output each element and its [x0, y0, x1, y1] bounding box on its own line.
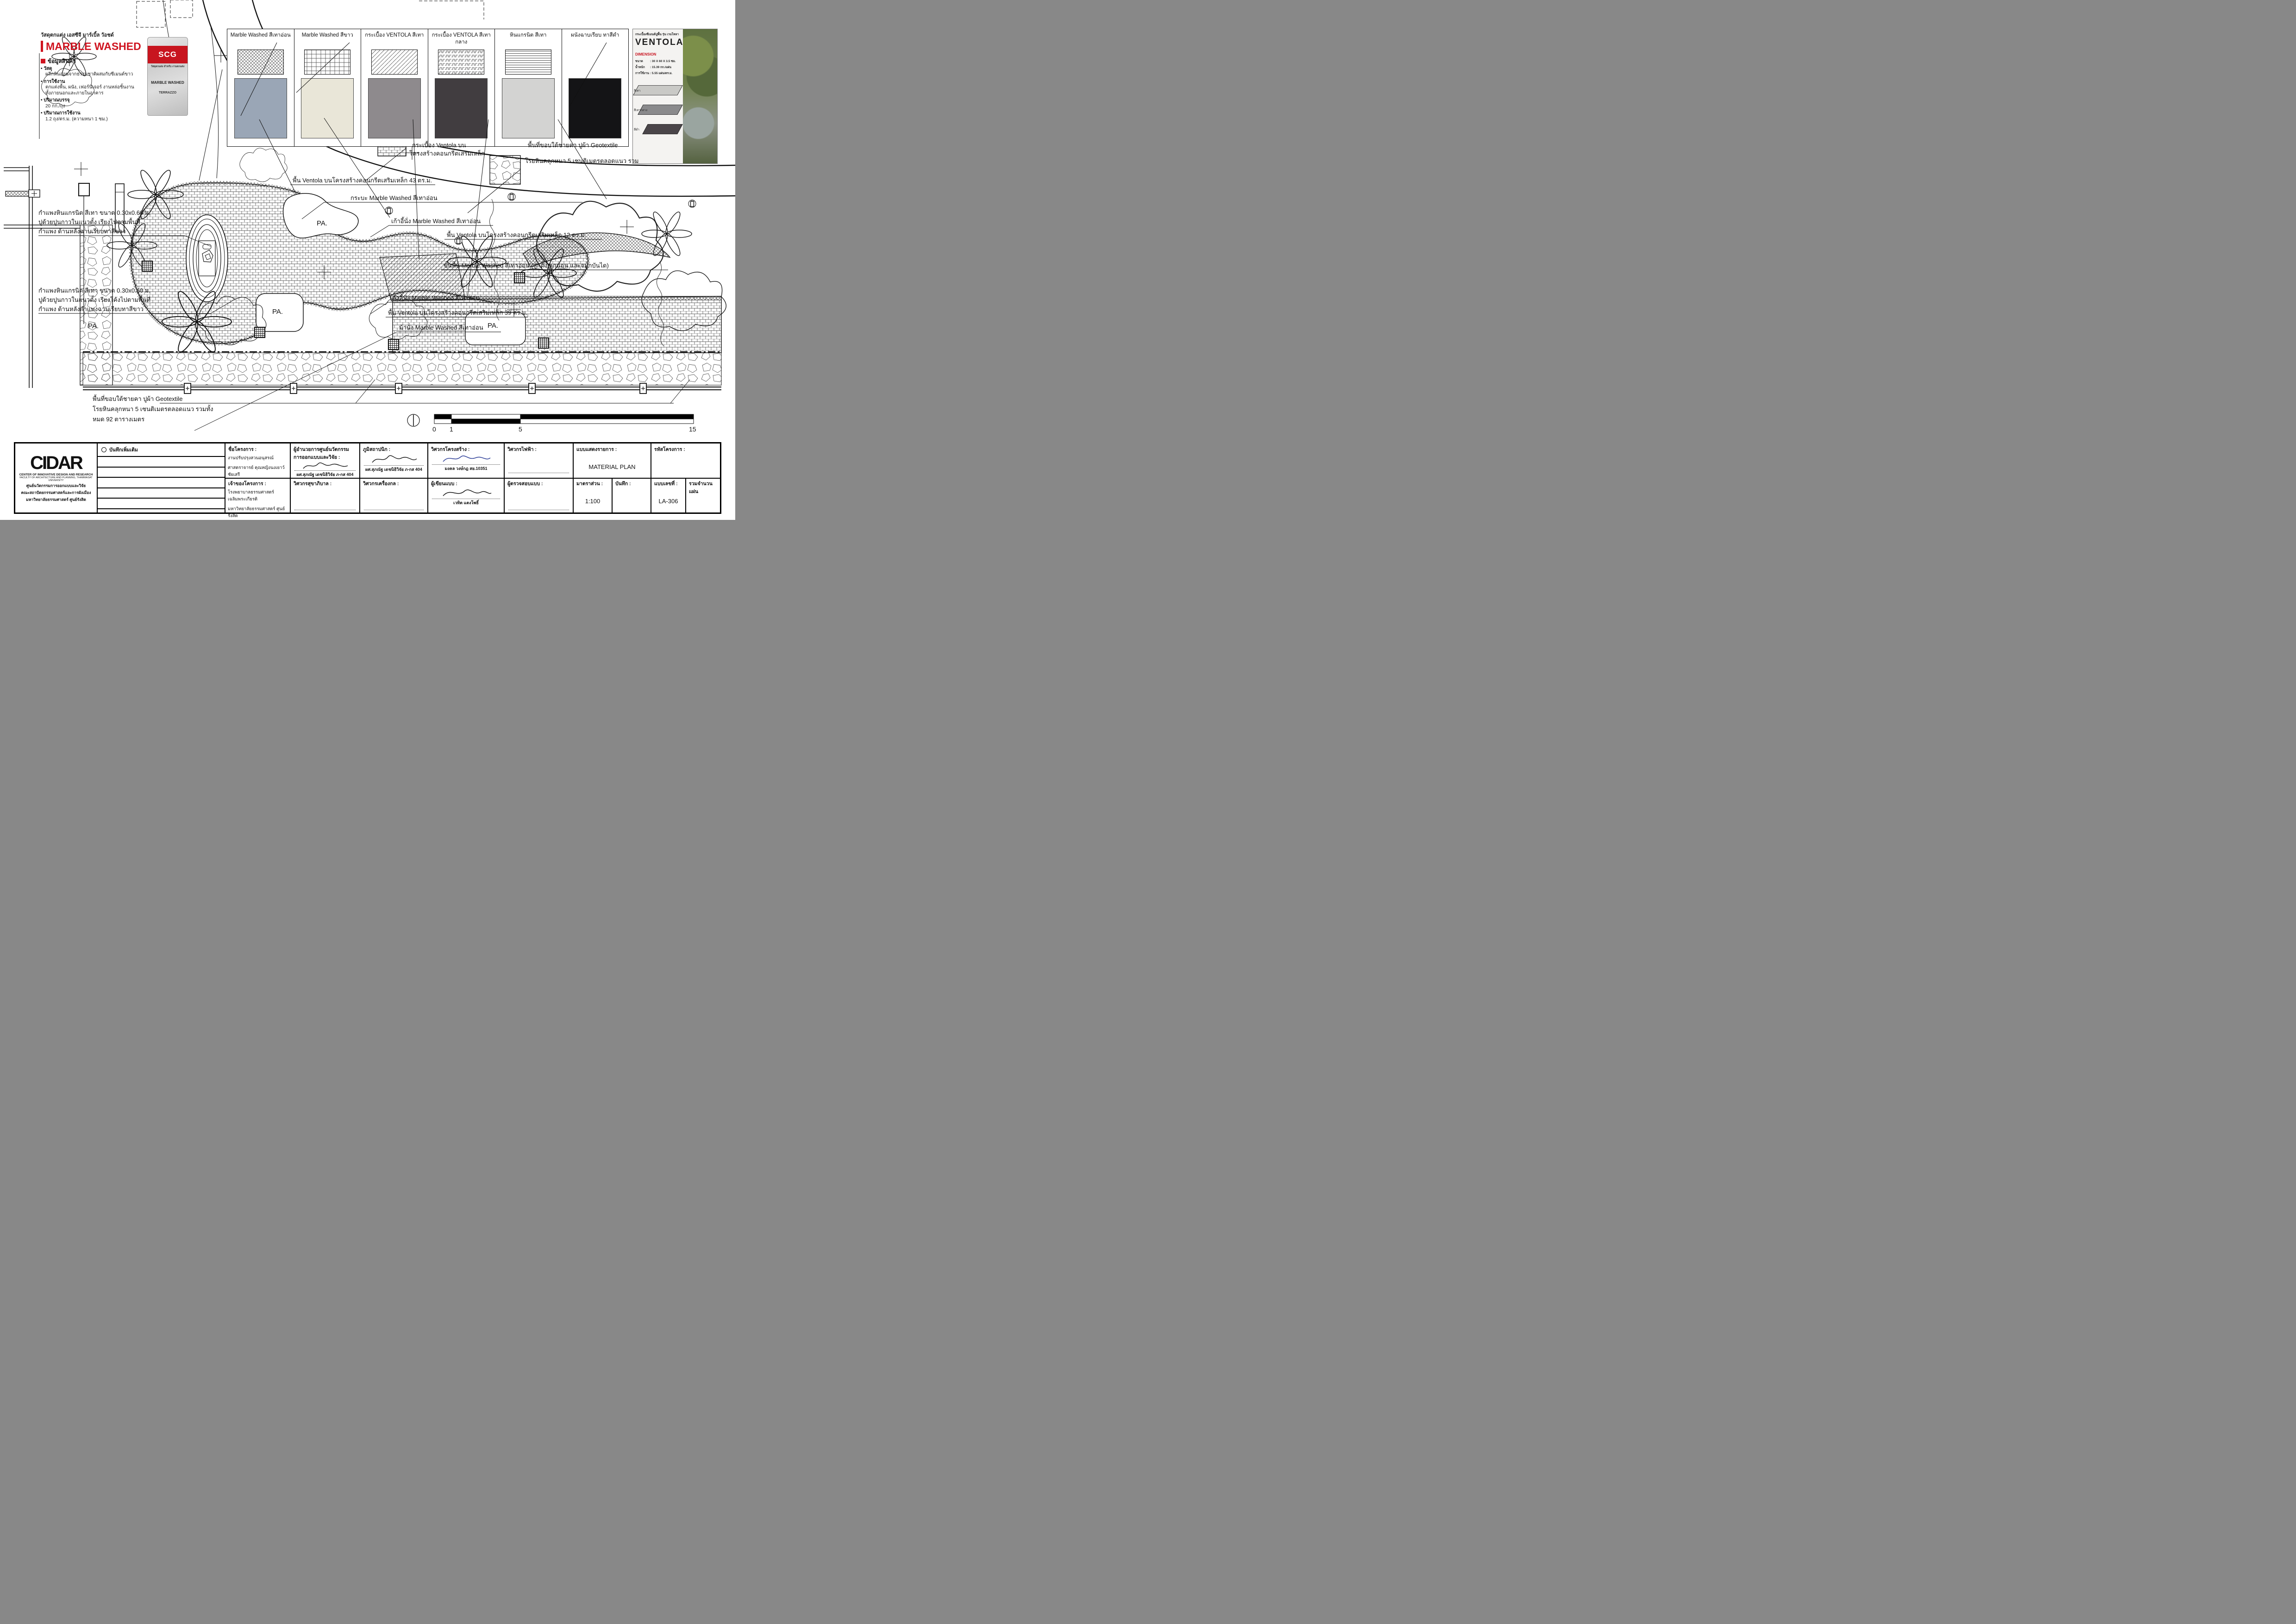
poster-photo: [683, 29, 717, 163]
director-name: ผศ.สุภณัฐ เดชนิธิวิจัย ภ-กส 404: [291, 471, 359, 478]
tile-label-gray: สีเทา: [634, 88, 640, 93]
product-header: วัสดุตกแต่ง เอสซีจี มาร์เบิ้ล วัอชด์: [41, 32, 217, 39]
drafts-name: เวทิต แตงโพธิ์: [428, 500, 504, 506]
title-block: CIDAR CENTER OF INNOVATIVE DESIGN AND RE…: [14, 442, 721, 514]
red-bar: [41, 41, 43, 52]
drafts-signature: [438, 487, 494, 499]
existing-building-outline: [137, 0, 484, 27]
bullet-usage-text2: ทั้งภายนอกและภายในอาคาร: [45, 91, 143, 97]
tile-label-black: สีดำ: [634, 127, 639, 132]
tb-doc-scale-cell: แบบแสดงรายการ : MATERIAL PLAN มาตราส่วน …: [574, 443, 651, 512]
poster-dimension-header: DIMENSION: [635, 52, 681, 56]
poster-header: กระเบื้องซีเมนต์ปูพื้น รุ่น เวนโทลา: [635, 32, 681, 37]
struct-name: มงคล วงษ์กฎ สย.10351: [428, 465, 504, 472]
hatch-diagonal: [371, 50, 418, 75]
bullet-consumption-label: ปริมาณการใช้งาน: [41, 111, 143, 117]
landscape-signature: [369, 453, 419, 465]
tile-gray: [633, 85, 683, 95]
north-arrow: [407, 414, 419, 426]
poster-spec-table: ขนาด: 30 X 60 X 3.5 ซม. น้ำหนัก: 15.39 ก…: [635, 58, 677, 76]
logo-th2: คณะสถาปัตยกรรมศาสตร์และการผังเมือง: [21, 489, 91, 496]
product-info-panel: วัสดุตกแต่ง เอสซีจี มาร์เบิ้ล วัอชด์ MAR…: [41, 32, 217, 130]
tb-notes-cell: บันทึกเพิ่มเติม: [98, 443, 225, 512]
photo-marble-washed-light-gray: [234, 78, 287, 138]
tb-landscape-mech-cell: ภูมิสถาปนิก : ผศ.สุภณัฐ เดชนิธิวิจัย ภ-ก…: [360, 443, 428, 512]
photo-black-plaster-wall: [569, 78, 621, 138]
tb-director-sanitary-cell: ผู้อำนวยการศูนย์นวัตกรรม การออกแบบและวิจ…: [291, 443, 360, 512]
tile-black: [642, 124, 683, 134]
scale-bar: [434, 414, 694, 424]
landscape-label: ภูมิสถาปนิก :: [360, 443, 427, 453]
swatch-marble-washed-white: Marble Washed สีขาว: [294, 29, 362, 146]
sheet-no-value: LA-306: [651, 498, 685, 505]
swatch-black-plaster-wall: ผนังฉาบเรียบ ทาสีดำ: [562, 29, 629, 146]
red-square-icon: [41, 59, 45, 63]
bullet-usage-label: การใช้งาน: [41, 79, 143, 85]
mech-label: วิศวกรเครื่องกล :: [360, 478, 427, 487]
swatch-marble-washed-light-gray: Marble Washed สีเทาอ่อน: [227, 29, 294, 146]
poster-title: VENTOLA: [635, 37, 681, 48]
hatch-grid: [304, 50, 350, 75]
director-label1: ผู้อำนวยการศูนย์นวัตกรรม: [291, 443, 359, 453]
photo-marble-washed-white: [301, 78, 354, 138]
note-row: [98, 477, 225, 487]
product-bag-image: SCG วัสดุตกแต่ง สำหรับ งานตกแต่ง MARBLE …: [147, 37, 188, 116]
swatch-ventola-mid-gray: กระเบื้อง VENTOLA สีเทากลาง: [428, 29, 495, 146]
project-line1: งานปรับปรุงสวนอนุสรณ์: [225, 453, 290, 463]
owner-line2: มหาวิทยาลัยธรรมศาสตร์ ศูนย์รังสิต: [225, 504, 290, 520]
tile-label-mid-gray: สีเทากลาง: [634, 108, 647, 112]
bag-series: TERRAZZO: [148, 91, 188, 94]
logo-en1: CENTER OF INNOVATIVE DESIGN AND RESEARCH: [19, 473, 93, 476]
note-row: [98, 498, 225, 508]
doc-label: แบบแสดงรายการ :: [574, 443, 651, 453]
director-signature: [300, 461, 350, 470]
swatch-granite-gray: หินแกรนิต สีเทา: [495, 29, 562, 146]
bullet-consumption-text: 1.2 ถุง/ตร.ม. (ความหนา 1 ซม.): [45, 117, 143, 123]
bag-tagline: วัสดุตกแต่ง สำหรับ งานตกแต่ง: [148, 65, 188, 69]
note-bullet-icon: [101, 447, 106, 452]
scale-value: 1:100: [574, 498, 612, 505]
owner-label: เจ้าของโครงการ :: [225, 478, 290, 487]
bag-product-name: MARBLE WASHED: [148, 81, 188, 85]
photo-ventola-gray: [368, 78, 421, 138]
bag-brand: SCG: [158, 50, 177, 59]
check-label: ผู้ตรวจสอบแบบ :: [505, 478, 573, 487]
product-title: MARBLE WASHED: [46, 40, 141, 53]
bullet-material-text: ผลึกหินอ่อนจากธรรมชาติผสมกับซีเมนต์ขาว: [45, 72, 143, 78]
doc-value: MATERIAL PLAN: [574, 463, 651, 470]
tb-project-owner-cell: ชื่อโครงการ : งานปรับปรุงสวนอนุสรณ์ ศาสต…: [225, 443, 291, 512]
note-row: [98, 487, 225, 498]
gravel-band-bottom: [83, 352, 721, 394]
hatch-horizontal-lines: [505, 50, 551, 75]
note-label: บันทึก :: [613, 478, 651, 487]
note-row: [98, 456, 225, 467]
drawing-sheet: วัสดุตกแต่ง เอสซีจี มาร์เบิ้ล วัอชด์ MAR…: [0, 0, 735, 520]
sanitary-label: วิศวกรสุขาภิบาล :: [291, 478, 359, 487]
scale-label: มาตราส่วน :: [574, 478, 612, 487]
photo-ventola-mid-gray: [435, 78, 488, 138]
landscape-name: ผศ.สุภณัฐ เดชนิธิวิจัย ภ-กส 404: [360, 466, 427, 473]
tb-logo-cell: CIDAR CENTER OF INNOVATIVE DESIGN AND RE…: [15, 443, 98, 512]
bullet-package-label: ปริมาณบรรจุ: [41, 98, 143, 104]
legend-symbols: [378, 141, 520, 184]
monument-oval: [186, 215, 228, 302]
note-row: [98, 508, 225, 519]
info-header: ข้อมูลสินค้า: [48, 58, 76, 65]
photo-granite-gray: [502, 78, 555, 138]
poster-tiles: [636, 84, 680, 142]
drafts-label: ผู้เขียนแบบ :: [428, 478, 504, 487]
owner-line1: โรงพยาบาลธรรมศาสตร์เฉลิมพระเกียรติ: [225, 487, 290, 504]
logo-th1: ศูนย์นวัตกรรมการออกแบบและวิจัย: [26, 482, 86, 489]
bullet-material-label: วัสดุ: [41, 66, 143, 72]
ventola-poster: กระเบื้องซีเมนต์ปูพื้น รุ่น เวนโทลา VENT…: [632, 29, 718, 164]
hatch-diamond: [238, 50, 284, 75]
swatch-ventola-gray: กระเบื้อง VENTOLA สีเทา: [361, 29, 428, 146]
note-row: [98, 467, 225, 477]
struct-signature: [438, 453, 494, 464]
bullet-usage-text1: ตกแต่งพื้น, ผนัง, เฟอร์นิเจอร์ งานหล่อชิ…: [45, 85, 143, 91]
bullet-package-text: 20 กก./ถุง: [45, 104, 143, 110]
project-line2: ศาสตราจารย์ คุณหญิงนงเยาว์ ชัยเสรี: [225, 463, 290, 480]
cidar-logo: CIDAR: [30, 454, 82, 472]
project-label: ชื่อโครงการ :: [225, 443, 290, 453]
tb-code-sheet-cell: รหัสโครงการ : แบบเลขที่ : LA-306 รวมจำนว…: [651, 443, 720, 512]
elec-label: วิศวกรไฟฟ้า :: [505, 443, 573, 453]
director-label2: การออกแบบและวิจัย :: [291, 453, 359, 461]
struct-label: วิศวกรโครงสร้าง :: [428, 443, 504, 453]
sheet-no-label: แบบเลขที่ :: [651, 478, 685, 487]
tb-struct-drafts-cell: วิศวกรโครงสร้าง : มงคล วงษ์กฎ สย.10351 ผ…: [428, 443, 505, 512]
tb-elec-check-cell: วิศวกรไฟฟ้า : ผู้ตรวจสอบแบบ :: [505, 443, 574, 512]
code-label: รหัสโครงการ :: [651, 443, 720, 453]
total-sheets-label: รวมจำนวนแผ่น: [686, 478, 720, 495]
material-swatch-panel: Marble Washed สีเทาอ่อน Marble Washed สี…: [227, 29, 629, 147]
logo-th3: มหาวิทยาลัยธรรมศาสตร์ ศูนย์รังสิต: [26, 496, 86, 503]
hatch-zigzag: [438, 50, 484, 75]
logo-en2: FACULTY OF ARCHITECTURE AND PLANNING, TH…: [15, 476, 97, 482]
notes-header: บันทึกเพิ่มเติม: [109, 446, 138, 454]
